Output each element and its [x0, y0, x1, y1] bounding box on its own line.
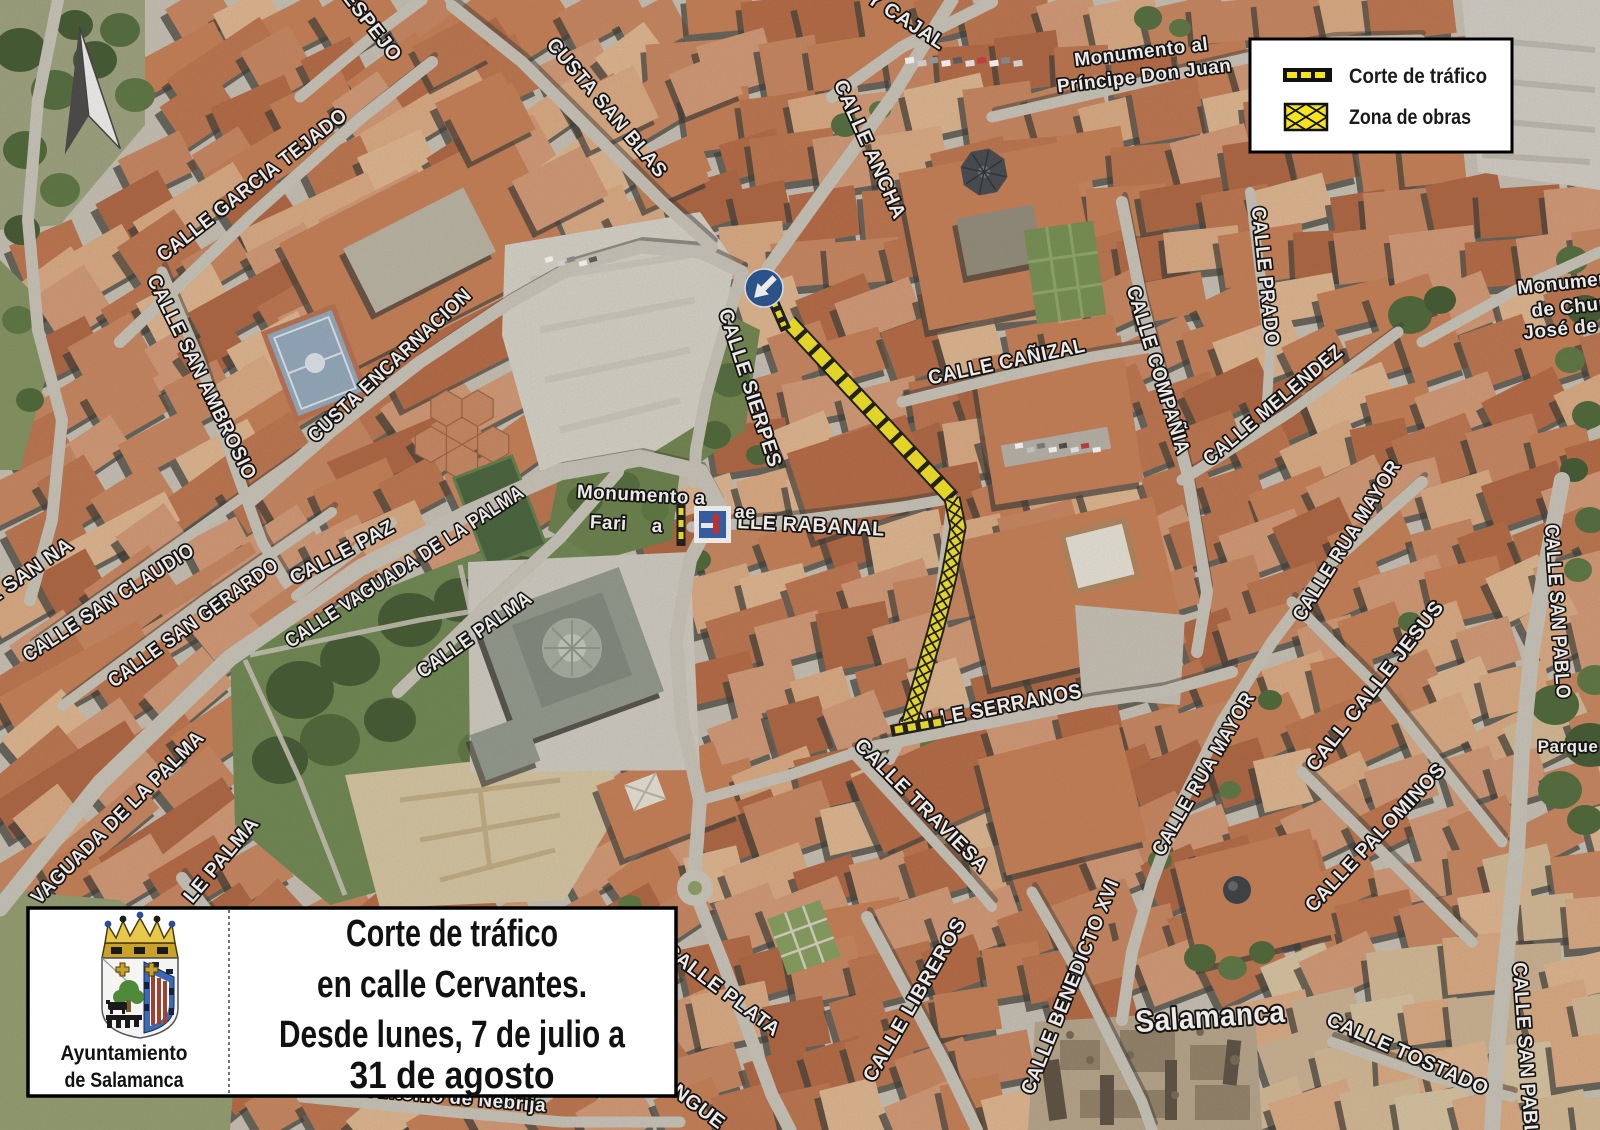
svg-text:de Salamanca: de Salamanca	[65, 1069, 184, 1092]
svg-text:Ayuntamiento: Ayuntamiento	[61, 1042, 188, 1065]
svg-text:Zona de obras: Zona de obras	[1349, 106, 1471, 129]
svg-text:en calle Cervantes.: en calle Cervantes.	[317, 964, 587, 1006]
svg-text:Corte de tráfico: Corte de tráfico	[1349, 65, 1487, 88]
svg-text:Corte de tráfico: Corte de tráfico	[346, 913, 558, 955]
svg-text:Desde lunes, 7 de julio a: Desde lunes, 7 de julio a	[279, 1014, 626, 1056]
svg-text:31 de agosto: 31 de agosto	[350, 1055, 555, 1097]
